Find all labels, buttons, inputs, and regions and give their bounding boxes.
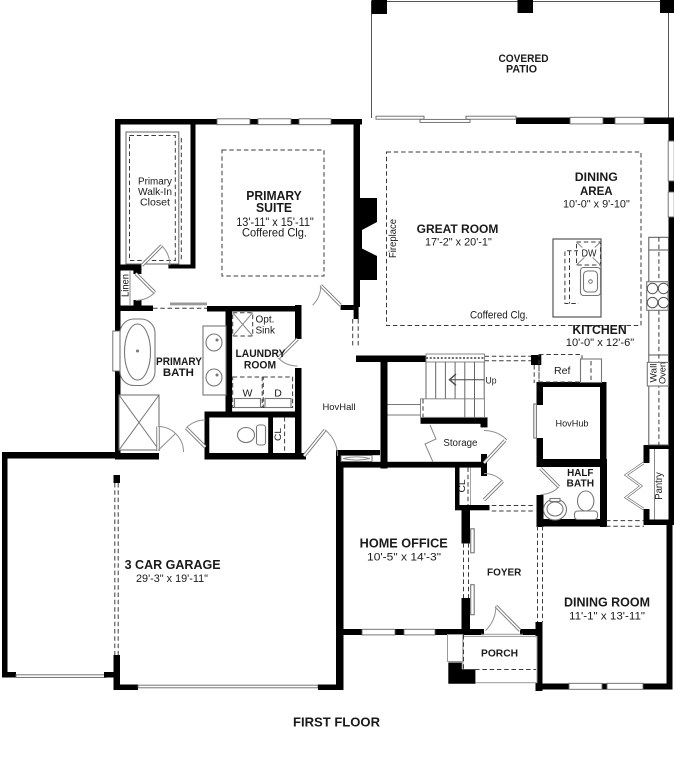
svg-text:Ref: Ref xyxy=(554,366,571,377)
svg-text:Pantry: Pantry xyxy=(654,472,665,500)
svg-text:Walk-In: Walk-In xyxy=(138,187,172,198)
svg-text:W: W xyxy=(243,388,253,400)
svg-text:10'-5" x 14'-3": 10'-5" x 14'-3" xyxy=(367,552,441,564)
svg-text:DINING: DINING xyxy=(575,170,618,184)
svg-text:Opt.: Opt. xyxy=(256,315,275,326)
svg-text:10'-0" x 9'-10": 10'-0" x 9'-10" xyxy=(563,199,630,211)
svg-text:DINING ROOM: DINING ROOM xyxy=(564,596,650,610)
svg-text:CL: CL xyxy=(457,480,468,493)
svg-text:AREA: AREA xyxy=(580,184,613,198)
svg-text:Coffered Clg.: Coffered Clg. xyxy=(470,310,528,322)
svg-text:Closet: Closet xyxy=(140,198,170,209)
svg-text:GREAT ROOM: GREAT ROOM xyxy=(417,222,499,236)
svg-text:LAUNDRY: LAUNDRY xyxy=(236,348,287,360)
svg-text:Storage: Storage xyxy=(443,438,477,449)
svg-text:10'-0" x 12'-6": 10'-0" x 12'-6" xyxy=(566,337,635,349)
svg-text:PORCH: PORCH xyxy=(481,648,518,660)
svg-text:Up: Up xyxy=(486,376,497,387)
svg-text:Primary: Primary xyxy=(138,177,172,188)
svg-text:PATIO: PATIO xyxy=(506,63,537,75)
svg-text:Fireplace: Fireplace xyxy=(388,219,399,258)
svg-text:HovHall: HovHall xyxy=(323,402,356,413)
svg-text:11'-1" x 13'-11": 11'-1" x 13'-11" xyxy=(569,611,645,623)
svg-text:FOYER: FOYER xyxy=(487,567,522,579)
svg-text:DW: DW xyxy=(582,249,597,260)
svg-text:D: D xyxy=(274,388,282,400)
svg-text:KITCHEN: KITCHEN xyxy=(572,323,626,337)
svg-text:29'-3" x 19'-11": 29'-3" x 19'-11" xyxy=(136,573,208,585)
svg-text:3 CAR GARAGE: 3 CAR GARAGE xyxy=(125,558,221,572)
svg-text:HovHub: HovHub xyxy=(556,419,589,430)
svg-text:Linen: Linen xyxy=(120,274,132,297)
svg-text:Coffered Clg.: Coffered Clg. xyxy=(242,226,307,240)
svg-text:HOME OFFICE: HOME OFFICE xyxy=(360,537,448,551)
svg-text:BATH: BATH xyxy=(163,367,194,379)
svg-text:Sink: Sink xyxy=(256,326,276,337)
svg-text:17'-2" x 20'-1": 17'-2" x 20'-1" xyxy=(425,236,492,248)
svg-text:ROOM: ROOM xyxy=(244,360,276,372)
svg-text:SUITE: SUITE xyxy=(256,201,292,215)
svg-text:FIRST FLOOR: FIRST FLOOR xyxy=(293,715,381,730)
svg-text:Oven: Oven xyxy=(658,362,669,384)
svg-text:BATH: BATH xyxy=(567,479,595,490)
svg-text:CL: CL xyxy=(273,428,284,441)
svg-text:HALF: HALF xyxy=(567,468,593,479)
